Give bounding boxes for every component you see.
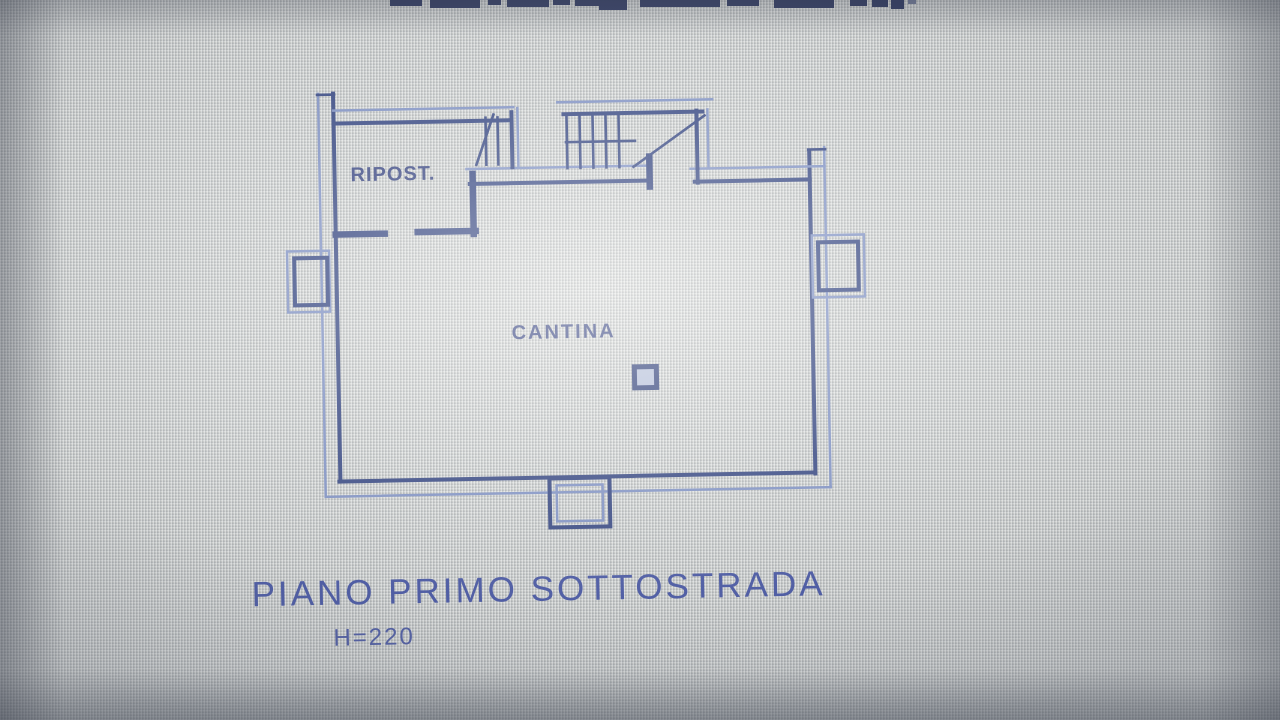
wall-segment [334,120,510,123]
wall-segment [563,112,702,115]
height-label: H=220 [333,623,415,652]
wall-segment [517,108,518,167]
stair-tread [497,117,498,164]
bottom-bay-inner [557,485,604,522]
cutoff-header-text [390,0,916,10]
wall-segment [809,150,815,473]
wall-segment [326,487,831,497]
wall-segment [707,109,708,168]
room-label-cantina: CANTINA [511,320,615,344]
wall-segment [336,234,385,235]
floorplan-photo: RIPOST. CANTINA PIANO PRIMO SOTTOSTRADA … [0,0,1280,720]
floor-caption: PIANO PRIMO SOTTOSTRADA [251,564,826,614]
wall-segment [418,231,476,232]
wall-segment [557,99,712,102]
wall-segment [470,181,648,184]
room-label-ripost: RIPOST. [350,163,435,187]
right-bay-inner [818,242,859,291]
stair-rail [566,141,635,142]
outer-walls [317,84,832,497]
wall-segment [696,111,697,183]
wall-segment [333,107,513,110]
pillar [634,366,656,387]
wall-segment [649,157,650,187]
staircase [475,99,714,187]
wall-segment [691,166,825,169]
wall-segment [318,94,326,497]
stair-diagonal [632,115,705,166]
plan-tilt-group: RIPOST. CANTINA PIANO PRIMO SOTTOSTRADA … [242,83,872,653]
wall-segment [824,147,831,487]
wall-segment [511,112,512,167]
floorplan-drawing: RIPOST. CANTINA PIANO PRIMO SOTTOSTRADA … [0,0,1280,720]
wall-segment [695,179,810,181]
wall-segment [333,94,340,482]
